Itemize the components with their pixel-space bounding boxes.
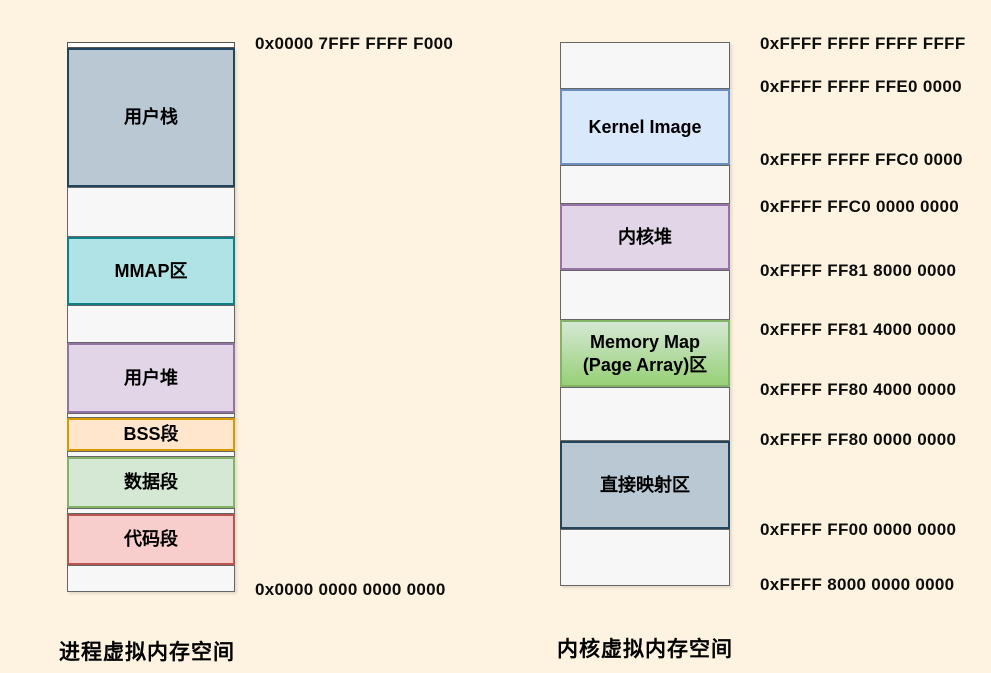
segment-direct-mapping-label: 直接映射区	[600, 474, 690, 497]
segment-kernel-heap-label: 内核堆	[618, 226, 672, 249]
address-label: 0xFFFF FFFF FFFF FFFF	[760, 34, 966, 54]
address-label: 0xFFFF FFC0 0000 0000	[760, 197, 959, 217]
segment-bss-label: BSS段	[123, 423, 178, 446]
segment-memory-map-label: Memory Map (Page Array)区	[574, 331, 716, 376]
segment-direct-mapping: 直接映射区	[560, 441, 730, 529]
segment-bss: BSS段	[67, 418, 235, 451]
segment-memory-map-page-array: Memory Map (Page Array)区	[560, 320, 730, 387]
address-label: 0xFFFF FFFF FFC0 0000	[760, 150, 963, 170]
process-bottom-reserved	[67, 565, 235, 592]
address-label: 0xFFFF FF80 0000 0000	[760, 430, 956, 450]
address-label: 0xFFFF FF81 8000 0000	[760, 261, 956, 281]
address-label: 0x0000 7FFF FFFF F000	[255, 34, 453, 54]
segment-user-heap-label: 用户堆	[124, 367, 178, 390]
kernel-unused-gap-1	[560, 165, 730, 204]
kernel-unused-gap-2	[560, 270, 730, 320]
segment-data: 数据段	[67, 457, 235, 508]
process-unused-gap-2	[67, 305, 235, 343]
address-label: 0xFFFF FF81 4000 0000	[760, 320, 956, 340]
segment-mmap: MMAP区	[67, 237, 235, 305]
kernel-unused-gap-3	[560, 387, 730, 441]
process-space-caption: 进程虚拟内存空间	[59, 636, 235, 666]
segment-code-label: 代码段	[124, 528, 178, 551]
kernel-space-caption: 内核虚拟内存空间	[557, 633, 733, 663]
kernel-top-reserved	[560, 42, 730, 89]
address-label: 0xFFFF FFFF FFE0 0000	[760, 77, 962, 97]
segment-data-label: 数据段	[124, 471, 178, 494]
address-label: 0xFFFF FF00 0000 0000	[760, 520, 956, 540]
memory-layout-diagram: 用户栈 MMAP区 用户堆 BSS段 数据段 代码段 0x0000 7FFF F…	[0, 0, 991, 673]
segment-mmap-label: MMAP区	[115, 260, 188, 283]
address-label: 0x0000 0000 0000 0000	[255, 580, 446, 600]
segment-kernel-image-label: Kernel Image	[588, 116, 701, 139]
segment-user-heap: 用户堆	[67, 343, 235, 413]
address-label: 0xFFFF 8000 0000 0000	[760, 575, 954, 595]
segment-user-stack: 用户栈	[67, 48, 235, 187]
segment-user-stack-label: 用户栈	[124, 106, 178, 129]
address-label: 0xFFFF FF80 4000 0000	[760, 380, 956, 400]
segment-kernel-image: Kernel Image	[560, 89, 730, 165]
process-unused-gap-1	[67, 187, 235, 237]
segment-code: 代码段	[67, 514, 235, 565]
kernel-bottom-reserved	[560, 529, 730, 586]
segment-kernel-heap: 内核堆	[560, 204, 730, 270]
